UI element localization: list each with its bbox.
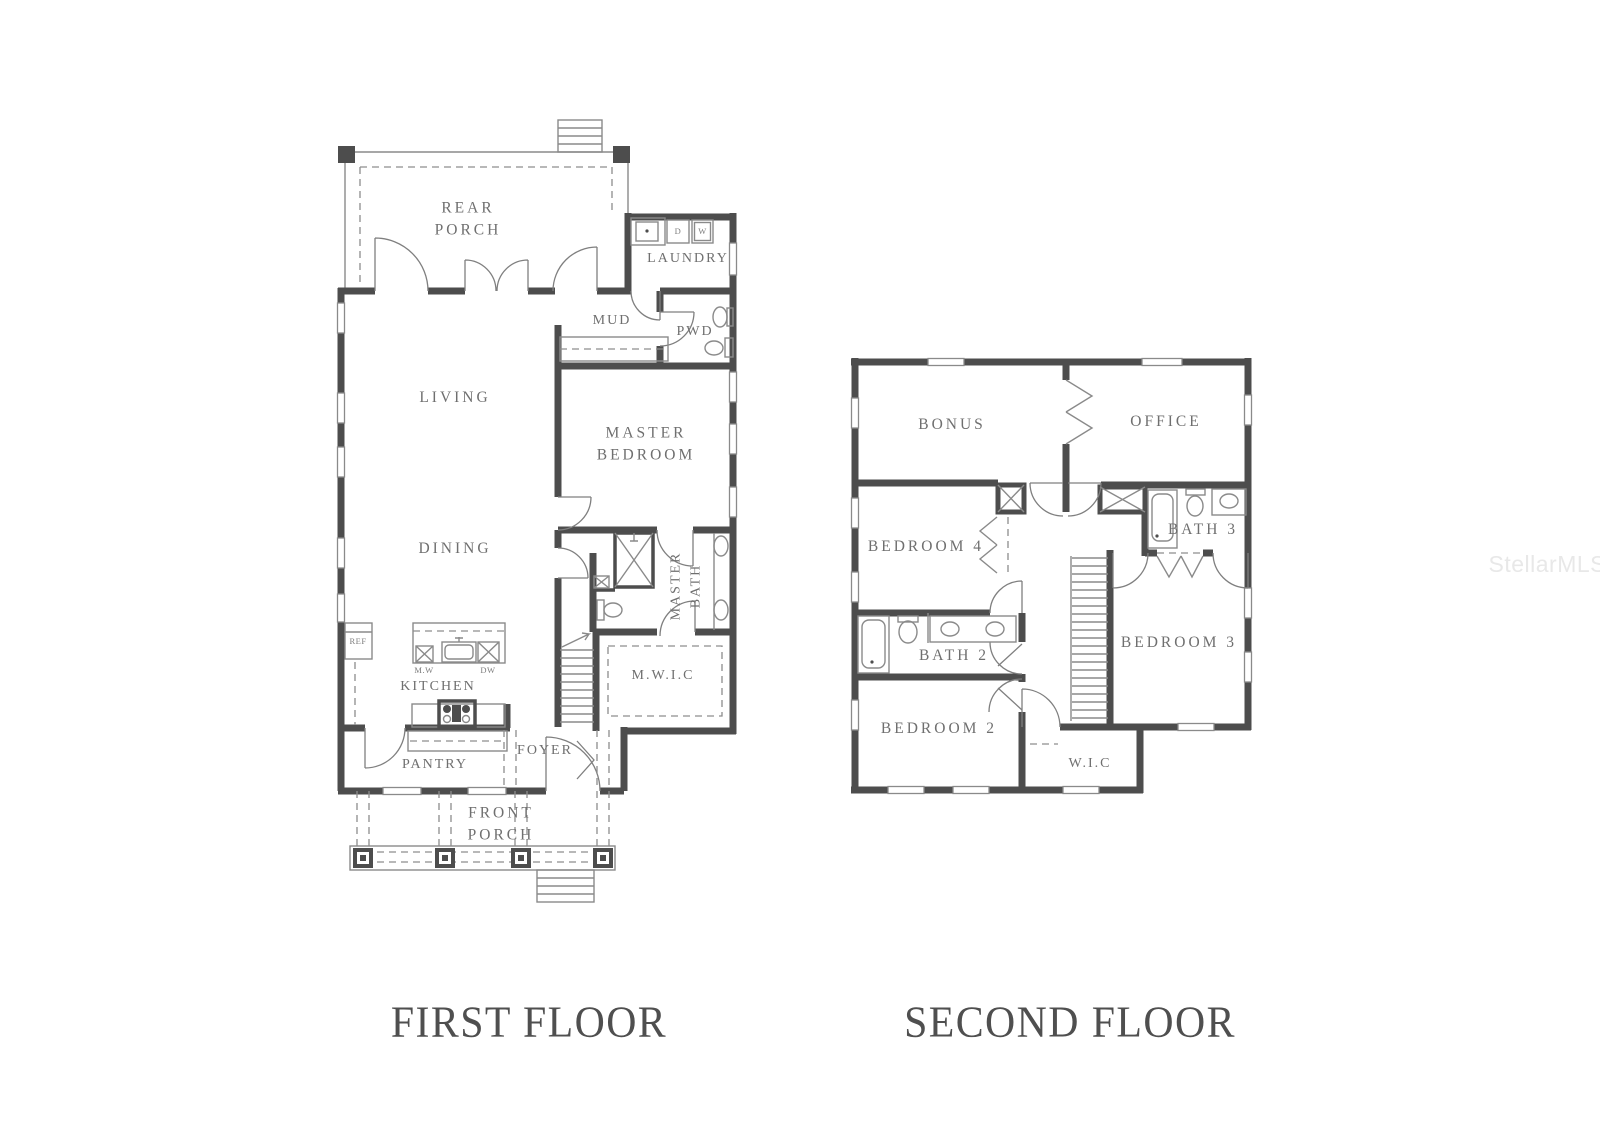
sf-stairs <box>1071 556 1108 721</box>
room-label-front-porch: FRONT PORCH <box>468 802 535 845</box>
stellar-mls-watermark: StellarMLS <box>1489 551 1600 578</box>
ff-mud-bench <box>560 337 668 361</box>
room-label-bedroom4: BEDROOM 4 <box>868 536 984 558</box>
appliance-label-washer: W <box>698 227 707 236</box>
room-label-mwic: M.W.I.C <box>632 666 695 686</box>
room-label-living: LIVING <box>419 387 490 409</box>
ff-pantry-fixtures <box>408 731 507 751</box>
room-label-bedroom3: BEDROOM 3 <box>1121 632 1237 654</box>
room-label-office: OFFICE <box>1130 411 1201 433</box>
room-label-bedroom2: BEDROOM 2 <box>881 718 997 740</box>
floor-plan-drawing <box>0 0 1600 1132</box>
room-label-pantry: PANTRY <box>402 755 468 775</box>
ff-doors <box>365 238 695 791</box>
room-label-kitchen: KITCHEN <box>400 677 475 697</box>
ff-walls <box>338 213 736 791</box>
room-label-bath3: BATH 3 <box>1168 519 1238 541</box>
room-label-bonus: BONUS <box>918 414 986 436</box>
room-label-mud: MUD <box>593 311 632 331</box>
room-label-bath2: BATH 2 <box>919 645 989 667</box>
appliance-label-refrigerator: REF <box>349 637 366 646</box>
room-label-foyer: FOYER <box>517 741 573 761</box>
second-floor-title: SECOND FLOOR <box>904 997 1236 1048</box>
floor-plan-page: REAR PORCH LAUNDRY MUD PWD LIVING MASTER… <box>0 0 1600 1132</box>
first-floor-title: FIRST FLOOR <box>391 997 667 1048</box>
room-label-wic: W.I.C <box>1069 754 1112 774</box>
appliance-label-dishwasher: DW <box>480 666 495 675</box>
appliance-label-microwave: M.W <box>414 666 433 675</box>
room-label-master-bath: MASTER BATH <box>666 552 705 621</box>
ff-kitchen-fixtures <box>345 623 505 727</box>
room-label-master-bedroom: MASTER BEDROOM <box>597 422 696 465</box>
ff-stairs <box>560 633 594 722</box>
room-label-pwd: PWD <box>676 322 713 342</box>
room-label-rear-porch: REAR PORCH <box>435 197 502 240</box>
room-label-dining: DINING <box>418 538 491 560</box>
appliance-label-dryer: D <box>675 227 682 236</box>
room-label-laundry: LAUNDRY <box>647 249 729 269</box>
